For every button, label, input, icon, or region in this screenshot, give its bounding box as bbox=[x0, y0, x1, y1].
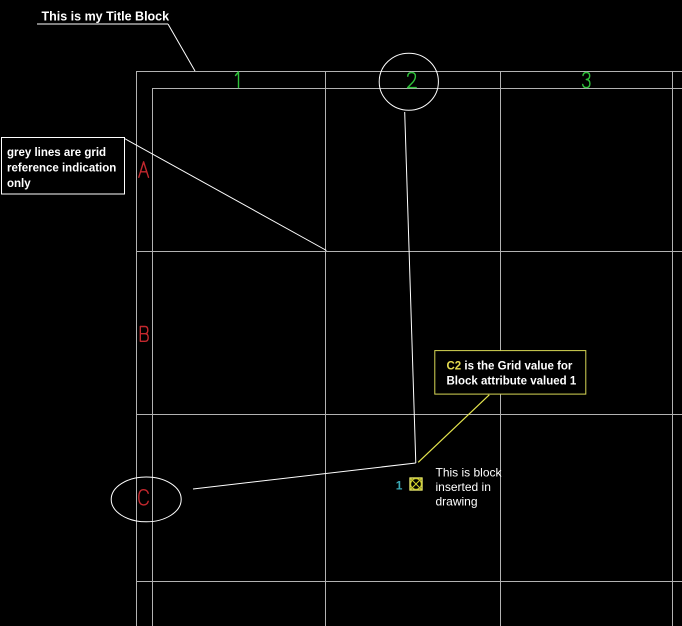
svg-text:grey lines are grid: grey lines are grid bbox=[7, 147, 106, 159]
svg-text:C2 is the Grid value for: C2 is the Grid value for bbox=[447, 360, 573, 372]
svg-text:inserted in: inserted in bbox=[436, 480, 491, 494]
svg-text:only: only bbox=[7, 178, 31, 190]
svg-text:drawing: drawing bbox=[436, 494, 478, 508]
svg-text:reference indication: reference indication bbox=[7, 163, 116, 175]
svg-text:1: 1 bbox=[396, 479, 403, 493]
svg-text:This is my Title Block: This is my Title Block bbox=[42, 10, 170, 24]
svg-text:This is block: This is block bbox=[436, 465, 503, 479]
svg-text:Block attribute valued 1: Block attribute valued 1 bbox=[447, 376, 577, 388]
